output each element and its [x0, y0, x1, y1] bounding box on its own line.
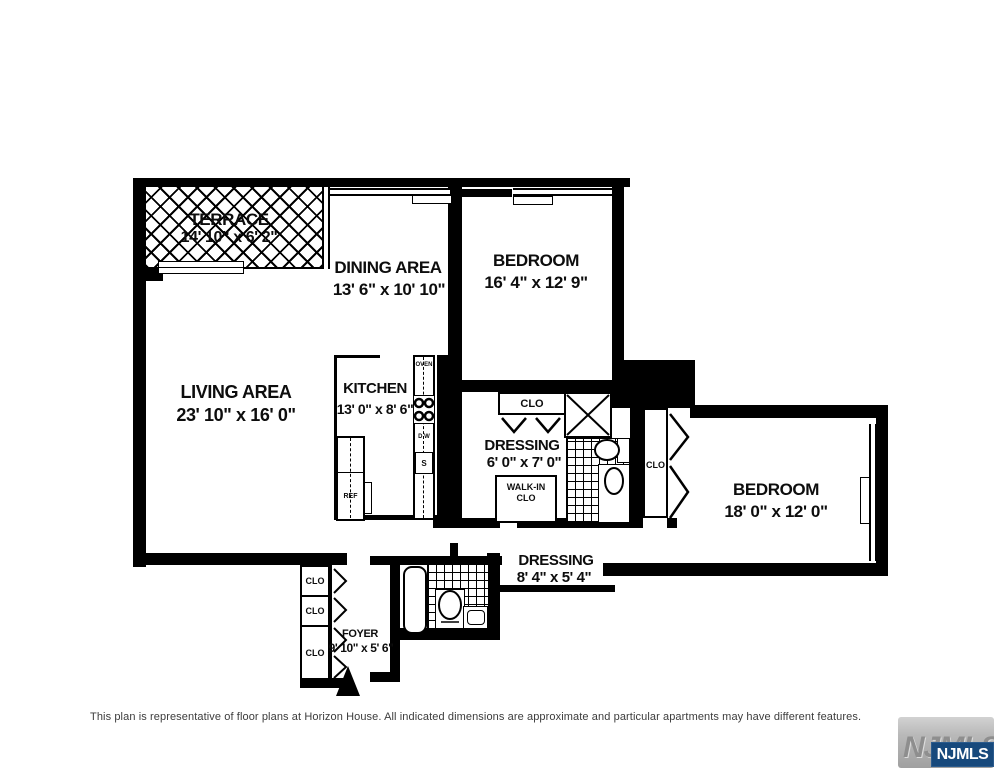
terrace-dims: 14' 10" x 6' 2": [181, 230, 278, 246]
bedroom1-dims: 16' 4" x 12' 9": [484, 274, 587, 291]
entrance-arrow-icon: [336, 666, 360, 696]
floor-plan-page: OVEN D W S REF CLO WALK-IN CLO CLO CLO C…: [0, 0, 994, 768]
terrace-name: TERRACE: [189, 211, 268, 228]
sink-icon: [605, 468, 623, 494]
shower-icon: [567, 395, 609, 435]
living-dims: 23' 10" x 16' 0": [176, 406, 295, 424]
bifold-door-icon: [502, 418, 560, 432]
disclaimer-text: This plan is representative of floor pla…: [90, 711, 890, 723]
njmls-logo-badge: NJMLS: [931, 742, 994, 767]
kitchen-name: KITCHEN: [343, 381, 407, 396]
dining-dims: 13' 6" x 10' 10": [333, 281, 445, 298]
bedroom2-dims: 18' 0" x 12' 0": [724, 503, 827, 520]
stove-burners-icon: [415, 399, 433, 420]
bedroom1-name: BEDROOM: [493, 252, 579, 269]
plan-symbols: [0, 0, 994, 768]
bifold-door-icon: [670, 414, 688, 518]
bifold-door-icon: [334, 569, 346, 678]
toilet-icon: [595, 440, 619, 460]
foyer-name: FOYER: [342, 629, 378, 640]
dining-name: DINING AREA: [334, 259, 441, 276]
toilet-icon: [439, 591, 461, 619]
dressing2-name: DRESSING: [518, 553, 593, 568]
living-name: LIVING AREA: [181, 383, 292, 401]
dressing2-dims: 8' 4" x 5' 4": [517, 570, 592, 585]
kitchen-dims: 13' 0" x 8' 6": [337, 402, 414, 416]
foyer-dims: 9' 10" x 5' 6": [329, 642, 394, 654]
dressing1-dims: 6' 0" x 7' 0": [487, 455, 562, 470]
dressing1-name: DRESSING: [484, 438, 559, 453]
bedroom2-name: BEDROOM: [733, 481, 819, 498]
